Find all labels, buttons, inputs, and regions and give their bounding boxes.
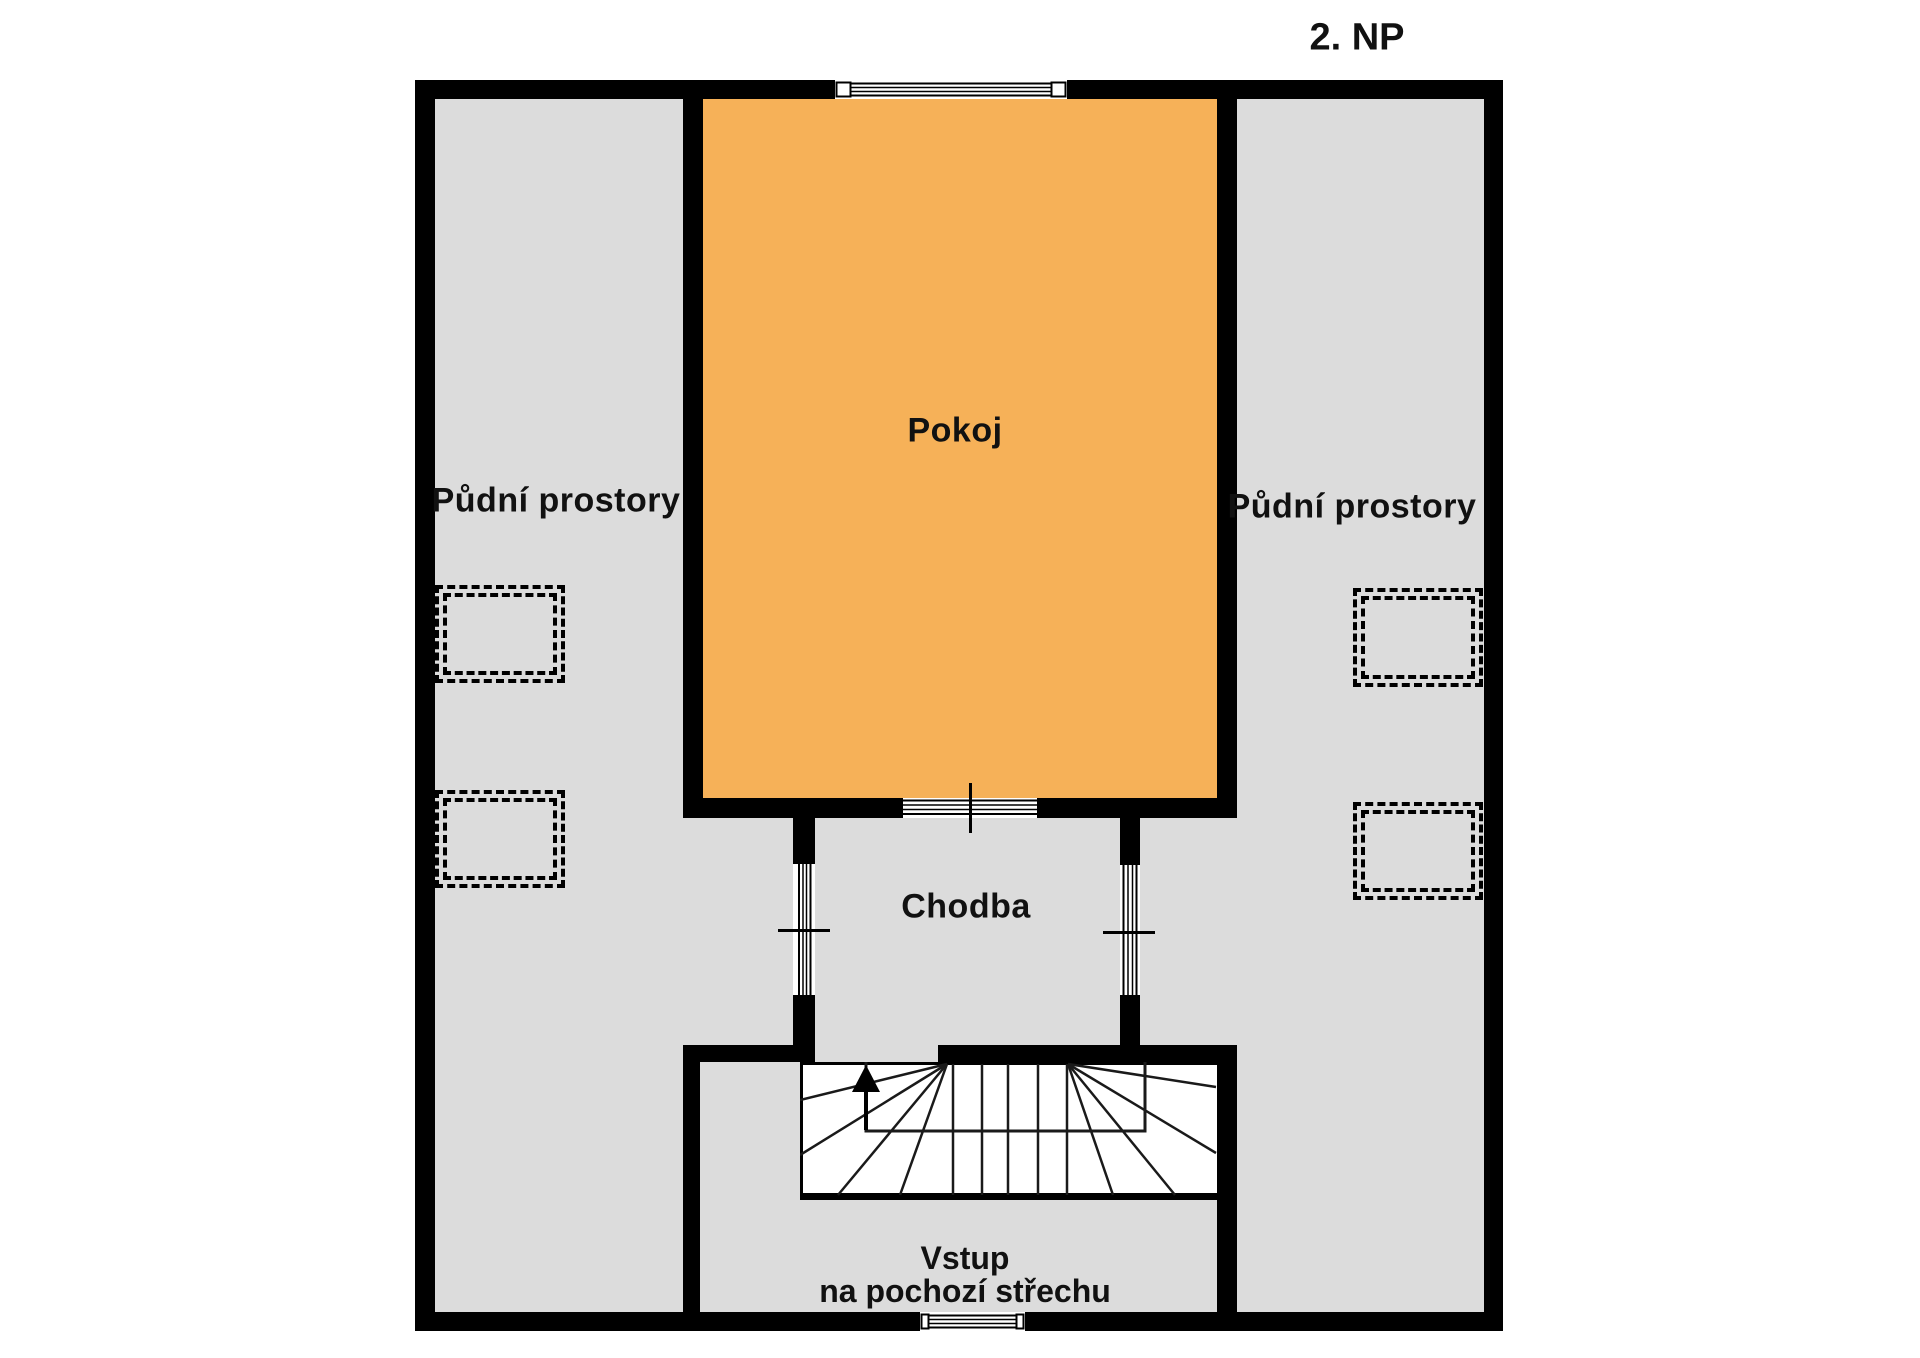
attic-left-notch (683, 818, 793, 1046)
roof-window-left-1 (435, 585, 565, 683)
door-pokoj-tick (969, 783, 972, 833)
chodba-label: Chodba (901, 888, 1031, 927)
wall-outer-right (1484, 80, 1503, 1331)
wall-outer-left (415, 80, 435, 1331)
roof-window-right-1 (1353, 588, 1483, 687)
window-top (835, 80, 1067, 99)
vstup-label: Vstup na pochozí střechu (819, 1242, 1111, 1308)
attic-right-label: Půdní prostory (1228, 488, 1477, 527)
vstup-label-line1: Vstup (819, 1242, 1111, 1275)
pokoj-label: Pokoj (907, 412, 1002, 451)
wall-chodba-right-lower (1120, 995, 1140, 1047)
door-chodba-right (1120, 865, 1140, 995)
wall-chodba-left-upper (793, 818, 815, 864)
roof-window-left-1-inner (443, 593, 557, 675)
wall-lower-left (683, 1045, 700, 1312)
floor-title: 2. NP (1309, 17, 1404, 60)
wall-stair-top-left (683, 1045, 805, 1062)
roof-window-left-2-inner (443, 798, 557, 880)
attic-left-area (435, 99, 683, 1312)
attic-right-area (1237, 99, 1484, 1312)
attic-left-label: Půdní prostory (432, 482, 681, 521)
wall-lower-right (1217, 1045, 1237, 1312)
floorplan-2np: 2. NP Půdní prostory Půdní prostory Poko… (0, 0, 1920, 1358)
wall-pokoj-right (1217, 80, 1237, 818)
vstup-label-line2: na pochozí střechu (819, 1275, 1111, 1308)
window-bottom (920, 1312, 1025, 1331)
stair-side-band (700, 1062, 800, 1200)
roof-window-right-2 (1353, 802, 1483, 900)
wall-stair-top-right (938, 1045, 1237, 1062)
staircase (800, 1062, 1217, 1200)
door-chodba-right-tick (1103, 931, 1155, 934)
roof-window-right-1-inner (1361, 596, 1475, 679)
wall-chodba-right-upper (1120, 818, 1140, 865)
door-chodba-left-tick (778, 929, 830, 932)
wall-pokoj-left (683, 80, 703, 818)
chodba-area (815, 818, 1120, 1062)
roof-window-left-2 (435, 790, 565, 888)
roof-window-right-2-inner (1361, 810, 1475, 892)
